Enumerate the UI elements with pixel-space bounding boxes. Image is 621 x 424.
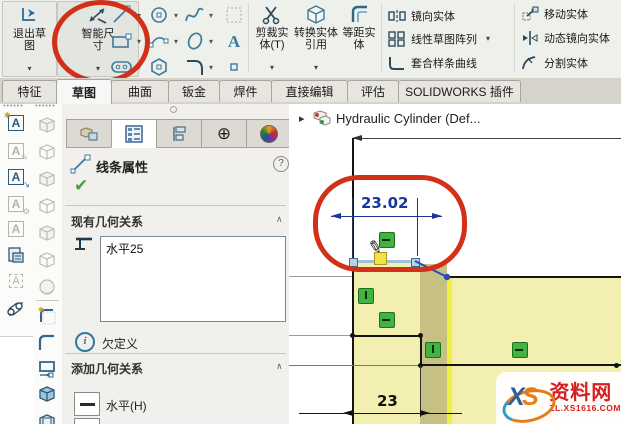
ribbon-separator <box>381 4 382 72</box>
corner-rectangle-star-icon[interactable]: ✱ <box>35 305 59 327</box>
convert-entities-caret-icon[interactable]: ▾ <box>314 64 318 72</box>
corner-rectangle-icon[interactable] <box>35 332 59 354</box>
shaded-cube-icon[interactable] <box>35 384 59 406</box>
featuremanager-tree-tab[interactable] <box>66 119 112 148</box>
toolbar-drag-handle[interactable]: •••••• <box>3 103 24 110</box>
exit-sketch-button[interactable]: 退出草图 ▾ <box>2 1 57 77</box>
help-icon[interactable]: ? <box>273 156 289 172</box>
move-entities-label: 移动实体 <box>544 6 588 22</box>
propertymanager-tab[interactable] <box>111 119 157 148</box>
exit-sketch-label: 退出草图 <box>10 28 50 52</box>
ellipse-tool-caret-icon[interactable]: ▾ <box>209 37 213 46</box>
displaymanager-tab[interactable] <box>246 119 292 148</box>
dimension-arrow-icon <box>343 410 353 416</box>
linear-pattern-button[interactable]: 线性草图阵列 ▾ <box>388 31 490 47</box>
note-star-icon[interactable]: A✱ <box>4 112 28 134</box>
annotation-toolbar-strip: •••••• A✱ A✎ A↘ A⚙ A A <box>0 104 34 337</box>
collapse-chevron-icon[interactable]: ∧ <box>276 214 283 225</box>
checkmark-ok-icon[interactable]: ✔ <box>74 176 88 196</box>
circle-tool-button[interactable] <box>147 3 171 27</box>
linear-pattern-caret-icon[interactable]: ▾ <box>486 35 490 43</box>
mirror-entities-label: 镜向实体 <box>411 8 455 24</box>
view-toolbar-strip: •••••• ✱ <box>33 104 63 424</box>
tab-evaluate[interactable]: 评估 <box>347 80 399 102</box>
split-entities-icon <box>521 55 539 71</box>
tree-expand-icon[interactable]: ▸ <box>299 112 305 125</box>
convert-entities-button[interactable]: 转换实体引用 ▾ <box>294 1 338 75</box>
ribbon-separator <box>514 4 515 72</box>
point-tool-button[interactable] <box>222 55 246 79</box>
fillet-tool-caret-icon[interactable]: ▾ <box>209 63 213 72</box>
arc-tool-button[interactable] <box>147 29 171 53</box>
spline-tool-caret-icon[interactable]: ▾ <box>209 11 213 20</box>
relation-list-item[interactable]: 水平25 <box>101 237 285 260</box>
watermark: X S 资料网 ZL.XS1616.COM <box>496 372 621 424</box>
move-entities-button[interactable]: 移动实体 <box>521 6 588 22</box>
tab-weldments-label: 焊件 <box>233 83 257 100</box>
cube-view-icon[interactable] <box>35 222 59 244</box>
note-misc-icon[interactable]: A <box>4 218 28 240</box>
tab-surfaces-label: 曲面 <box>128 83 152 100</box>
tab-direct-editing-label: 直接编辑 <box>285 83 333 100</box>
cube-view-icon[interactable] <box>35 249 59 271</box>
extension-line <box>289 365 420 366</box>
sketch-line-vertical[interactable] <box>420 335 422 365</box>
collapse-chevron-icon[interactable]: ∧ <box>276 361 283 372</box>
watermark-name: 资料网 <box>549 383 621 403</box>
split-entities-label: 分割实体 <box>544 55 588 71</box>
relations-listbox[interactable]: 水平25 <box>100 236 286 322</box>
sketch-endpoint[interactable] <box>350 333 355 338</box>
exit-sketch-caret-icon[interactable]: ▾ <box>27 65 31 73</box>
ribbon-toolbar: 退出草图 ▾ 智能尺寸 ▾ ▾ ▾ ▾ ▾ <box>0 0 621 79</box>
dimension-line-top <box>352 138 621 139</box>
text-tool-a-icon: A <box>228 33 240 50</box>
property-list-icon <box>124 125 144 143</box>
part-icon <box>79 125 99 143</box>
toolbar-drag-handle[interactable]: •••••• <box>35 103 56 110</box>
polygon-tool-button[interactable] <box>147 55 171 79</box>
dynamic-mirror-icon <box>521 30 539 46</box>
note-edit-icon[interactable]: A✎ <box>4 140 28 162</box>
add-relations-header[interactable]: 添加几何关系 <box>71 360 143 377</box>
tab-surfaces[interactable]: 曲面 <box>111 80 169 102</box>
tab-sketch-label: 草图 <box>72 84 96 101</box>
trim-entities-label: 剪裁实体(T) <box>252 27 292 51</box>
red-annotation-circle-toolbar <box>52 0 150 84</box>
vertical-glyph-icon <box>365 291 367 299</box>
extension-line <box>289 335 352 336</box>
hatch-area-icon[interactable]: A <box>4 270 28 292</box>
ribbon-separator <box>248 4 249 72</box>
mirror-entities-button[interactable]: 镜向实体 <box>388 8 455 24</box>
assembly-icon <box>313 110 331 126</box>
linear-pattern-label: 线性草图阵列 <box>411 31 477 47</box>
sketch-line-horizontal[interactable] <box>420 364 621 366</box>
tree-item-label[interactable]: Hydraulic Cylinder (Def... <box>336 111 481 126</box>
mirror-entities-icon <box>388 9 406 23</box>
sketch-status-text: 欠定义 <box>102 335 138 352</box>
add-vertical-relation-button[interactable] <box>74 418 100 424</box>
tab-features[interactable]: 特征 <box>2 80 57 102</box>
property-manager-panel: ⊕ 线条属性 ? ✔ 现有几何关系 ∧ 水平25 i 欠定义 添加几何关系 ∧ … <box>62 104 290 424</box>
configurations-icon <box>169 125 189 143</box>
dimension-line <box>299 413 462 414</box>
info-icon: i <box>75 332 95 352</box>
add-horizontal-relation-label: 水平(H) <box>106 397 147 414</box>
format-painter-icon[interactable] <box>4 244 28 266</box>
horizontal-relation-badge[interactable] <box>379 312 395 328</box>
solidworks-window: 退出草图 ▾ 智能尺寸 ▾ ▾ ▾ ▾ ▾ <box>0 0 621 424</box>
red-annotation-circle-dimension <box>313 175 467 272</box>
panel-divider <box>65 353 286 354</box>
panel-drag-handle[interactable] <box>170 106 177 113</box>
vertical-relation-badge[interactable] <box>358 288 374 304</box>
belt-chain-icon[interactable] <box>4 298 28 320</box>
ellipse-tool-button[interactable] <box>183 29 207 53</box>
tab-solidworks-addins-label: SOLIDWORKS 插件 <box>405 83 514 100</box>
extension-line <box>289 276 352 277</box>
linear-pattern-icon <box>388 31 406 47</box>
trim-entities-icon <box>261 3 283 27</box>
trim-entities-caret-icon[interactable]: ▾ <box>270 64 274 72</box>
exit-sketch-icon <box>19 4 41 28</box>
horizontal-relation-icon <box>73 234 95 254</box>
dimxpert-icon: ⊕ <box>217 124 231 144</box>
tab-features-label: 特征 <box>17 83 41 100</box>
vertical-relation-badge[interactable] <box>425 342 441 358</box>
fit-spline-icon <box>388 55 406 71</box>
cylinder-view-icon[interactable] <box>35 276 59 298</box>
fit-spline-button[interactable]: 套合样条曲线 <box>388 55 477 71</box>
sketch-line-horizontal[interactable] <box>352 335 421 337</box>
line-properties-icon <box>70 153 92 175</box>
sketch-picture-tool-button[interactable] <box>222 3 246 27</box>
sketch-line-horizontal[interactable] <box>450 276 621 278</box>
arc-tool-caret-icon[interactable]: ▾ <box>174 37 178 46</box>
tab-evaluate-label: 评估 <box>361 83 385 100</box>
graphics-viewport[interactable]: ▸ Hydraulic Cylinder (Def... 23.02 <box>289 104 621 424</box>
commandmanager-tabbar: 特征 草图 曲面 钣金 焊件 直接编辑 评估 SOLIDWORKS 插件 <box>0 78 621 105</box>
offset-entities-icon <box>347 3 371 27</box>
horizontal-bar-icon <box>80 403 95 406</box>
spline-tool-button[interactable] <box>183 3 207 27</box>
cube-view-icon[interactable] <box>35 195 59 217</box>
offset-entities-label: 等距实体 <box>340 27 378 51</box>
configuration-manager-tab[interactable] <box>156 119 202 148</box>
watermark-url: ZL.XS1616.COM <box>549 403 621 413</box>
dynamic-mirror-button[interactable]: 动态镜向实体 <box>521 30 610 46</box>
dynamic-mirror-label: 动态镜向实体 <box>544 30 610 46</box>
offset-entities-button[interactable]: 等距实体 <box>339 1 379 75</box>
tab-sheet-metal-label: 钣金 <box>182 83 206 100</box>
tab-sketch[interactable]: 草图 <box>56 79 112 104</box>
cube-view-icon[interactable] <box>35 141 59 163</box>
appearance-sphere-icon <box>260 125 278 143</box>
tab-weldments[interactable]: 焊件 <box>219 80 272 102</box>
watermark-logo: X S <box>500 378 549 418</box>
split-entities-button[interactable]: 分割实体 <box>521 55 588 71</box>
move-entities-icon <box>521 6 539 22</box>
panel-divider <box>65 205 286 206</box>
existing-relations-header[interactable]: 现有几何关系 <box>71 213 143 230</box>
circle-tool-caret-icon[interactable]: ▾ <box>174 11 178 20</box>
section-cube-icon[interactable] <box>35 410 59 424</box>
watermark-s: S <box>522 383 539 412</box>
note-leader-icon[interactable]: A↘ <box>4 166 28 188</box>
tab-sheet-metal[interactable]: 钣金 <box>168 80 220 102</box>
vertical-glyph-icon <box>432 345 434 353</box>
horizontal-glyph-icon <box>382 319 390 321</box>
convert-entities-label: 转换实体引用 <box>294 27 338 51</box>
cube-view-icon[interactable] <box>35 114 59 136</box>
dimxpert-manager-tab[interactable]: ⊕ <box>201 119 247 148</box>
horizontal-glyph-icon <box>515 349 523 351</box>
text-tool-button[interactable]: A <box>222 29 246 53</box>
trim-entities-button[interactable]: 剪裁实体(T) ▾ <box>251 1 293 75</box>
dimension-arrow-icon <box>420 410 430 416</box>
note-pattern-icon[interactable]: A⚙ <box>4 193 28 215</box>
tab-solidworks-addins[interactable]: SOLIDWORKS 插件 <box>398 80 521 102</box>
toolbar-separator <box>36 300 59 301</box>
tab-direct-editing[interactable]: 直接编辑 <box>271 80 348 102</box>
rectangle-arrow-icon[interactable] <box>35 358 59 380</box>
horizontal-relation-badge[interactable] <box>512 342 528 358</box>
add-horizontal-relation-button[interactable] <box>74 392 100 416</box>
convert-entities-icon <box>305 3 327 27</box>
panel-title: 线条属性 <box>96 157 148 176</box>
fillet-tool-button[interactable] <box>183 55 207 79</box>
svg-text:✱: ✱ <box>38 306 44 314</box>
fit-spline-label: 套合样条曲线 <box>411 55 477 71</box>
dimension-value-bottom[interactable]: 23 <box>377 392 398 410</box>
cube-view-icon[interactable] <box>35 168 59 190</box>
sketch-endpoint[interactable] <box>614 363 619 368</box>
